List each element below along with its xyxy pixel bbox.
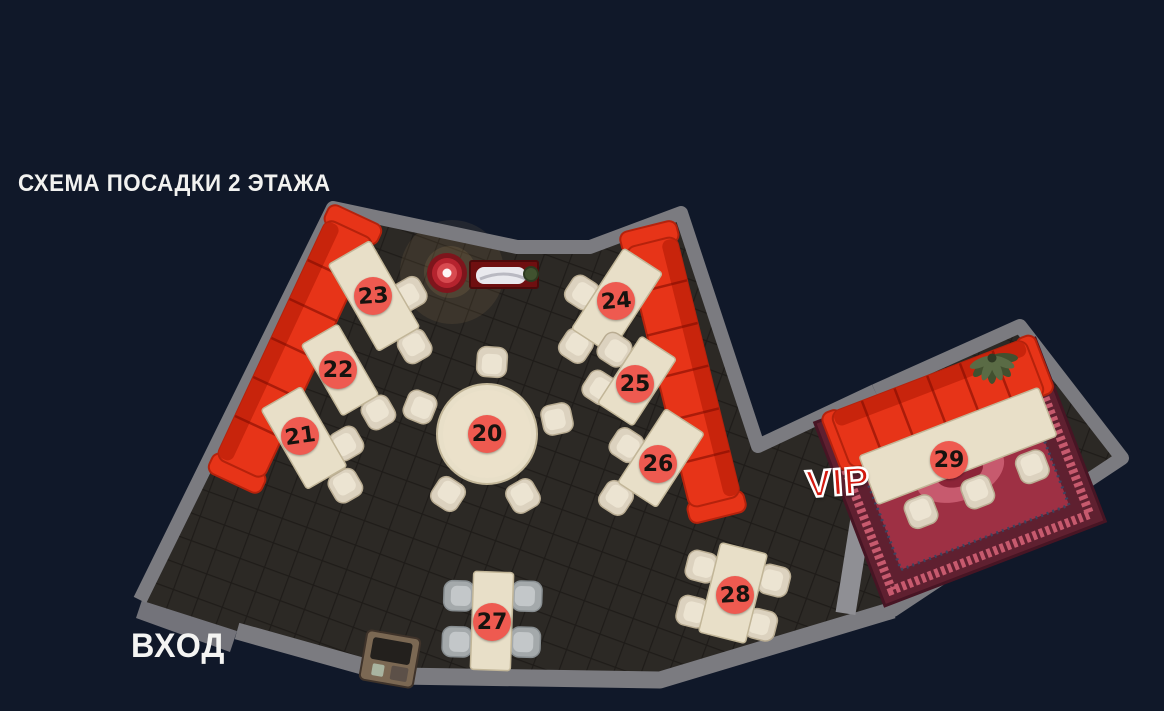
table-number: 26: [643, 452, 674, 477]
table-number: 23: [357, 282, 389, 309]
table-badge-28[interactable]: 28: [716, 576, 754, 614]
table-badge-24[interactable]: 24: [597, 282, 635, 320]
table-number: 29: [934, 448, 965, 473]
table-badge-27[interactable]: 27: [473, 603, 511, 641]
vip-label: VIP: [805, 460, 872, 507]
table-number: 27: [477, 610, 508, 635]
entrance-desk: [359, 630, 421, 689]
table-badge-23[interactable]: 23: [354, 277, 392, 315]
page-title: СХЕМА ПОСАДКИ 2 ЭТАЖА: [18, 170, 331, 198]
table-number: 22: [323, 358, 354, 383]
table-number: 28: [719, 582, 751, 609]
table-badge-22[interactable]: 22: [319, 351, 357, 389]
table-badge-25[interactable]: 25: [616, 365, 654, 403]
table-number: 21: [283, 421, 317, 450]
entrance-label: ВХОД: [131, 627, 225, 666]
table-number: 24: [600, 287, 633, 315]
table-badge-29[interactable]: 29: [930, 441, 968, 479]
floor-plan-drawing: [0, 0, 1164, 711]
table-badge-26[interactable]: 26: [639, 445, 677, 483]
table-number: 25: [620, 372, 651, 397]
console-table: [470, 261, 538, 288]
table-badge-20[interactable]: 20: [468, 415, 506, 453]
floor-plan: СХЕМА ПОСАДКИ 2 ЭТАЖА ВХОД VIP 20 21 22 …: [0, 0, 1164, 711]
table-number: 20: [472, 422, 503, 447]
ottoman-icon: [427, 253, 467, 293]
table-badge-21[interactable]: 21: [281, 417, 319, 455]
